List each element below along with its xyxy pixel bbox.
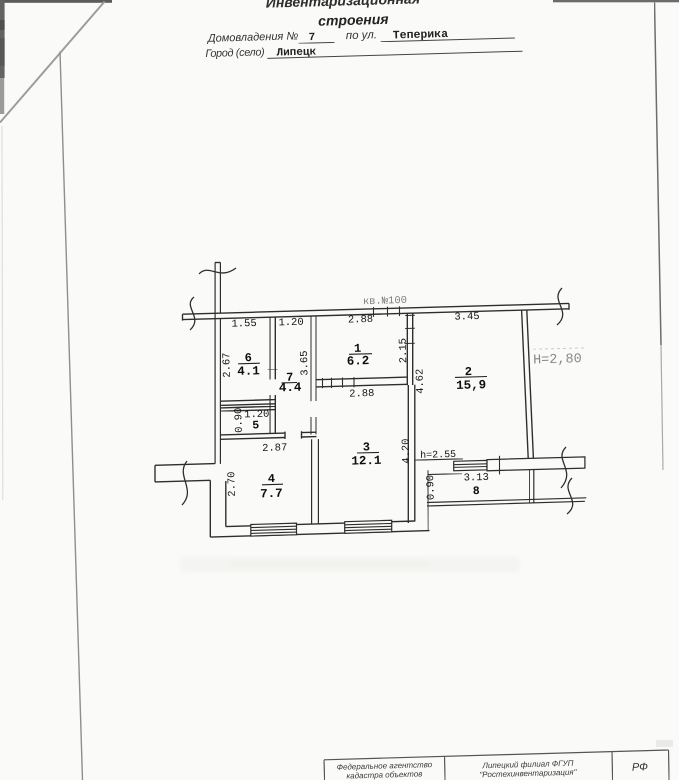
svg-text:4.1: 4.1 — [237, 364, 260, 379]
svg-text:0.90: 0.90 — [233, 407, 246, 433]
svg-text:3.13: 3.13 — [463, 472, 489, 485]
svg-text:2.70: 2.70 — [226, 471, 239, 497]
svg-text:2.87: 2.87 — [262, 442, 288, 455]
svg-text:Город (село): Город (село) — [205, 46, 264, 60]
svg-text:8: 8 — [473, 485, 480, 498]
svg-text:3.65: 3.65 — [299, 350, 312, 376]
svg-text:по ул.: по ул. — [346, 29, 378, 42]
svg-text:7.7: 7.7 — [260, 487, 283, 502]
svg-text:4.4: 4.4 — [279, 381, 302, 396]
svg-text:Н=2,80: Н=2,80 — [533, 352, 582, 368]
svg-text:кадастра объектов: кадастра объектов — [346, 769, 422, 780]
svg-text:1.55: 1.55 — [231, 318, 257, 331]
svg-text:h=2.55: h=2.55 — [420, 449, 456, 462]
svg-text:Домовладения №: Домовладения № — [206, 30, 299, 45]
svg-text:2.88: 2.88 — [349, 388, 375, 401]
svg-text:4.20: 4.20 — [400, 438, 413, 464]
svg-text:0.90: 0.90 — [425, 475, 438, 501]
svg-text:2.88: 2.88 — [348, 314, 374, 327]
svg-text:2.67: 2.67 — [221, 352, 234, 378]
svg-text:строения: строения — [318, 11, 389, 29]
svg-text:7: 7 — [308, 32, 315, 44]
svg-text:15,9: 15,9 — [456, 378, 486, 393]
svg-text:кв.№100: кв.№100 — [363, 295, 407, 308]
svg-text:3.45: 3.45 — [454, 311, 480, 324]
svg-text:5: 5 — [252, 419, 259, 432]
svg-text:2.15: 2.15 — [398, 338, 411, 364]
svg-text:12.1: 12.1 — [351, 454, 381, 469]
svg-text:1.20: 1.20 — [278, 317, 304, 330]
svg-text:6.2: 6.2 — [347, 354, 370, 369]
svg-text:4.62: 4.62 — [414, 368, 427, 394]
svg-text:РФ: РФ — [632, 761, 649, 773]
